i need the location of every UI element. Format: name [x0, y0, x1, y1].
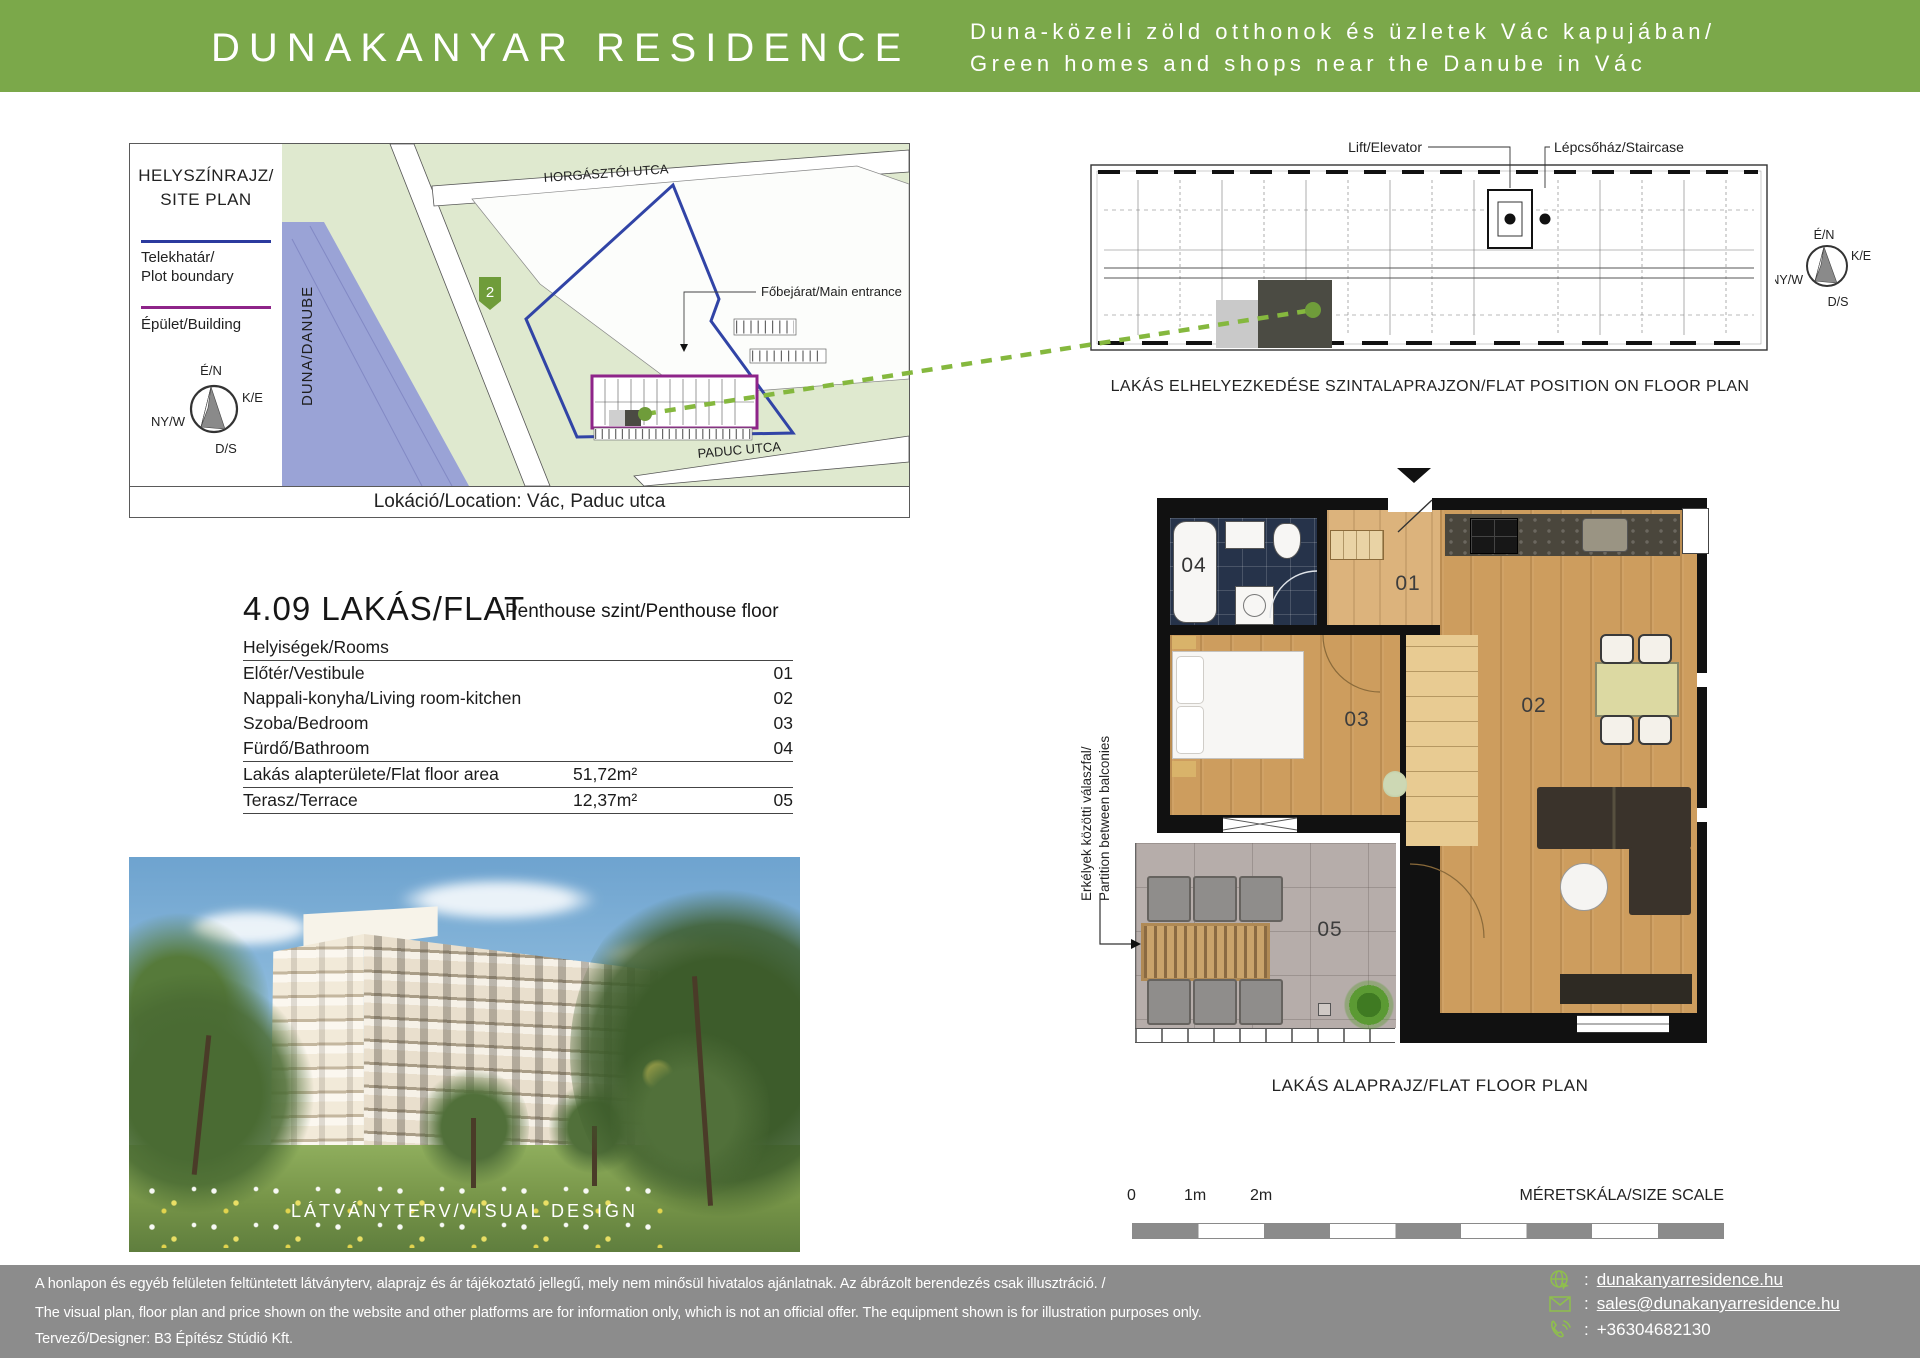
table-row: Előtér/Vestibule 01	[243, 661, 793, 686]
window	[1577, 1015, 1669, 1033]
pillow	[1176, 656, 1204, 704]
contact-web: : dunakanyarresidence.hu	[1548, 1269, 1783, 1291]
outdoor-chair	[1239, 876, 1283, 922]
plot-boundary-label: Telekhatár/ Plot boundary	[141, 248, 234, 286]
sideboard	[1560, 974, 1692, 1004]
river-label: DUNA/DANUBE	[299, 286, 316, 406]
entrance-label: Főbejárat/Main entrance	[761, 284, 902, 299]
staircase-label: Lépcsőház/Staircase	[1554, 139, 1684, 155]
contact-phone: : +36304682130	[1548, 1319, 1711, 1341]
email-link[interactable]: sales@dunakanyarresidence.hu	[1597, 1294, 1840, 1314]
visual-design-photo: LÁTVÁNYTERV/VISUAL DESIGN	[129, 857, 800, 1252]
outdoor-chair	[1147, 979, 1191, 1025]
compass-rose-icon: É/N K/E NY/W D/S	[152, 356, 267, 468]
nightstand	[1172, 761, 1196, 777]
svg-text:K/E: K/E	[1851, 249, 1871, 263]
plant-vase	[1383, 771, 1407, 797]
pillow	[1176, 706, 1204, 754]
sofa-chaise	[1629, 847, 1691, 915]
location-caption: Lokáció/Location: Vác, Paduc utca	[130, 486, 909, 517]
outdoor-chair	[1193, 876, 1237, 922]
stove	[1470, 518, 1518, 554]
site-plan-title: HELYSZÍNRAJZ/ SITE PLAN	[130, 164, 282, 212]
tagline-hu: Duna-közeli zöld otthonok és üzletek Vác…	[970, 16, 1716, 48]
dining-table	[1595, 662, 1679, 717]
potted-plant	[1342, 978, 1396, 1032]
plot-boundary-swatch	[141, 240, 271, 243]
svg-text:É/N: É/N	[200, 363, 222, 378]
brochure-page: DUNAKANYAR RESIDENCE Duna-közeli zöld ot…	[0, 0, 1920, 1358]
wardrobe	[1406, 635, 1478, 846]
floor-position-caption: LAKÁS ELHELYEZKEDÉSE SZINTALAPRAJZON/FLA…	[1090, 378, 1770, 396]
table-row: Lakás alapterülete/Flat floor area 51,72…	[243, 761, 793, 787]
visual-design-caption: LÁTVÁNYTERV/VISUAL DESIGN	[129, 1201, 800, 1222]
outdoor-chair	[1193, 979, 1237, 1025]
room-label-02: 02	[1512, 694, 1556, 718]
lift-dot	[1505, 214, 1516, 225]
rooms-table: Helyiségek/Rooms Előtér/Vestibule 01 Nap…	[243, 636, 793, 814]
svg-text:K/E: K/E	[242, 390, 263, 405]
entrance-arrow-icon	[1397, 468, 1431, 483]
svg-text:NY/W: NY/W	[152, 414, 186, 429]
sofa	[1537, 787, 1691, 849]
page-title: DUNAKANYAR RESIDENCE	[211, 26, 910, 71]
room-label-04: 04	[1172, 554, 1216, 578]
flat-plan-caption: LAKÁS ALAPRAJZ/FLAT FLOOR PLAN	[1130, 1076, 1730, 1096]
terrace-fence	[1135, 1028, 1395, 1043]
chair	[1600, 634, 1634, 664]
table-row: Terasz/Terrace 12,37m² 05	[243, 787, 793, 814]
room-label-01: 01	[1386, 572, 1430, 596]
coffee-table	[1560, 863, 1608, 911]
highlighted-flat	[1258, 280, 1332, 348]
rooms-table-header: Helyiségek/Rooms	[243, 636, 793, 661]
room-label-05: 05	[1308, 918, 1352, 942]
floor-position-diagram: Lift/Elevator Lépcsőház/Staircase	[1090, 130, 1770, 365]
footer-bar: A honlapon és egyéb felületen feltüntete…	[0, 1265, 1920, 1358]
svg-text:2: 2	[486, 284, 494, 301]
site-plan-panel: HELYSZÍNRAJZ/ SITE PLAN Telekhatár/ Plot…	[129, 143, 910, 518]
globe-icon	[1548, 1269, 1572, 1291]
header-tagline: Duna-közeli zöld otthonok és üzletek Vác…	[970, 16, 1716, 80]
toilet	[1273, 523, 1301, 559]
outdoor-chair	[1239, 979, 1283, 1025]
building-label: Épület/Building	[141, 315, 241, 334]
outdoor-table	[1141, 923, 1270, 981]
chair	[1638, 634, 1672, 664]
phone-icon	[1548, 1319, 1572, 1341]
flat-floor-plan: 01 02 03 04 05	[1130, 468, 1730, 1050]
site-plan-legend: HELYSZÍNRAJZ/ SITE PLAN Telekhatár/ Plot…	[130, 144, 283, 486]
living-room-02	[1440, 510, 1697, 1013]
flat-subtitle: Penthouse szint/Penthouse floor	[505, 601, 779, 623]
designer-credit: Tervező/Designer: B3 Építész Stúdió Kft.	[35, 1331, 293, 1347]
table-row: Nappali-konyha/Living room-kitchen 02	[243, 686, 793, 711]
kitchen-sink	[1582, 518, 1628, 552]
scale-bar: 0 1m 2m MÉRETSKÁLA/SIZE SCALE	[1132, 1185, 1724, 1240]
svg-text:NY/W: NY/W	[1775, 273, 1803, 287]
chair	[1638, 715, 1672, 745]
building-swatch	[141, 306, 271, 309]
svg-text:É/N: É/N	[1814, 227, 1835, 242]
scale-bar-segments	[1132, 1223, 1724, 1239]
website-link[interactable]: dunakanyarresidence.hu	[1597, 1270, 1783, 1290]
disclaimer-hu: A honlapon és egyéb felületen feltüntete…	[35, 1276, 1105, 1292]
window	[1223, 817, 1297, 833]
lift-label: Lift/Elevator	[1348, 139, 1422, 155]
chair	[1600, 715, 1634, 745]
outdoor-chair	[1147, 876, 1191, 922]
floor-drain	[1318, 1003, 1331, 1016]
window	[1682, 508, 1709, 554]
svg-text:D/S: D/S	[1828, 295, 1849, 309]
staircase-dot	[1540, 214, 1551, 225]
header-bar: DUNAKANYAR RESIDENCE Duna-közeli zöld ot…	[0, 0, 1920, 92]
mail-icon	[1548, 1294, 1572, 1314]
disclaimer-en: The visual plan, floor plan and price sh…	[35, 1305, 1202, 1321]
closet	[1330, 530, 1384, 560]
tagline-en: Green homes and shops near the Danube in…	[970, 48, 1716, 80]
phone-number: +36304682130	[1597, 1320, 1711, 1340]
scale-label: MÉRETSKÁLA/SIZE SCALE	[1519, 1187, 1724, 1205]
compass-rose-icon: É/N K/E NY/W D/S	[1775, 226, 1890, 311]
svg-text:D/S: D/S	[215, 441, 237, 456]
vestibule-01	[1327, 510, 1440, 625]
partition-label: Erkélyek közötti válaszfal/ Partition be…	[1078, 701, 1116, 901]
site-map: DUNA/DANUBE HORGÁSZTÓI UTCA PADUC UTCA	[282, 144, 909, 486]
sink	[1225, 521, 1265, 549]
contact-email: : sales@dunakanyarresidence.hu	[1548, 1294, 1840, 1314]
flat-title: 4.09 LAKÁS/FLAT	[243, 590, 525, 628]
room-label-03: 03	[1335, 708, 1379, 732]
nightstand	[1172, 636, 1196, 649]
table-row: Szoba/Bedroom 03	[243, 711, 793, 736]
table-row: Fürdő/Bathroom 04	[243, 736, 793, 761]
